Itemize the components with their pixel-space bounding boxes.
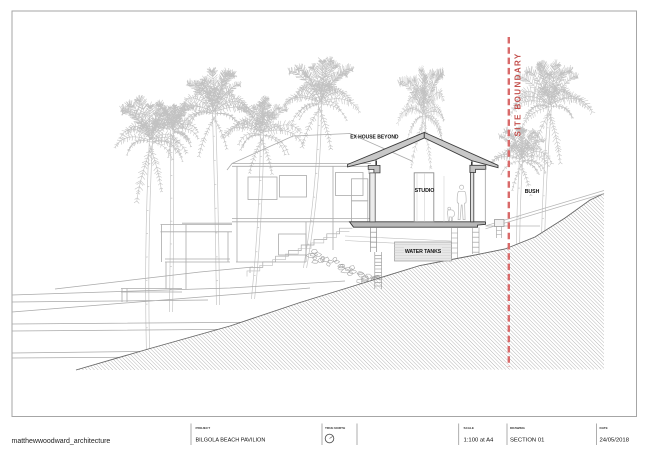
svg-text:DRAWING: DRAWING — [510, 426, 526, 430]
svg-text:BUSH: BUSH — [525, 189, 540, 195]
svg-text:matthewwoodward_architecture: matthewwoodward_architecture — [12, 438, 111, 445]
svg-text:SECTION 01: SECTION 01 — [510, 438, 544, 444]
svg-text:BILGOLA BEACH PAVILION: BILGOLA BEACH PAVILION — [196, 438, 266, 444]
svg-text:SITE BOUNDARY: SITE BOUNDARY — [514, 52, 523, 136]
svg-text:PROJECT: PROJECT — [196, 426, 211, 430]
svg-text:STUDIO: STUDIO — [415, 188, 435, 194]
svg-text:DATE: DATE — [600, 426, 608, 430]
svg-text:EX HOUSE BEYOND: EX HOUSE BEYOND — [350, 134, 399, 140]
svg-text:WATER TANKS: WATER TANKS — [405, 249, 442, 255]
svg-text:1:100 at A4: 1:100 at A4 — [464, 438, 495, 444]
svg-text:24/05/2018: 24/05/2018 — [600, 438, 630, 444]
svg-text:SCALE: SCALE — [464, 426, 475, 430]
svg-text:TRUE NORTH: TRUE NORTH — [325, 426, 346, 430]
